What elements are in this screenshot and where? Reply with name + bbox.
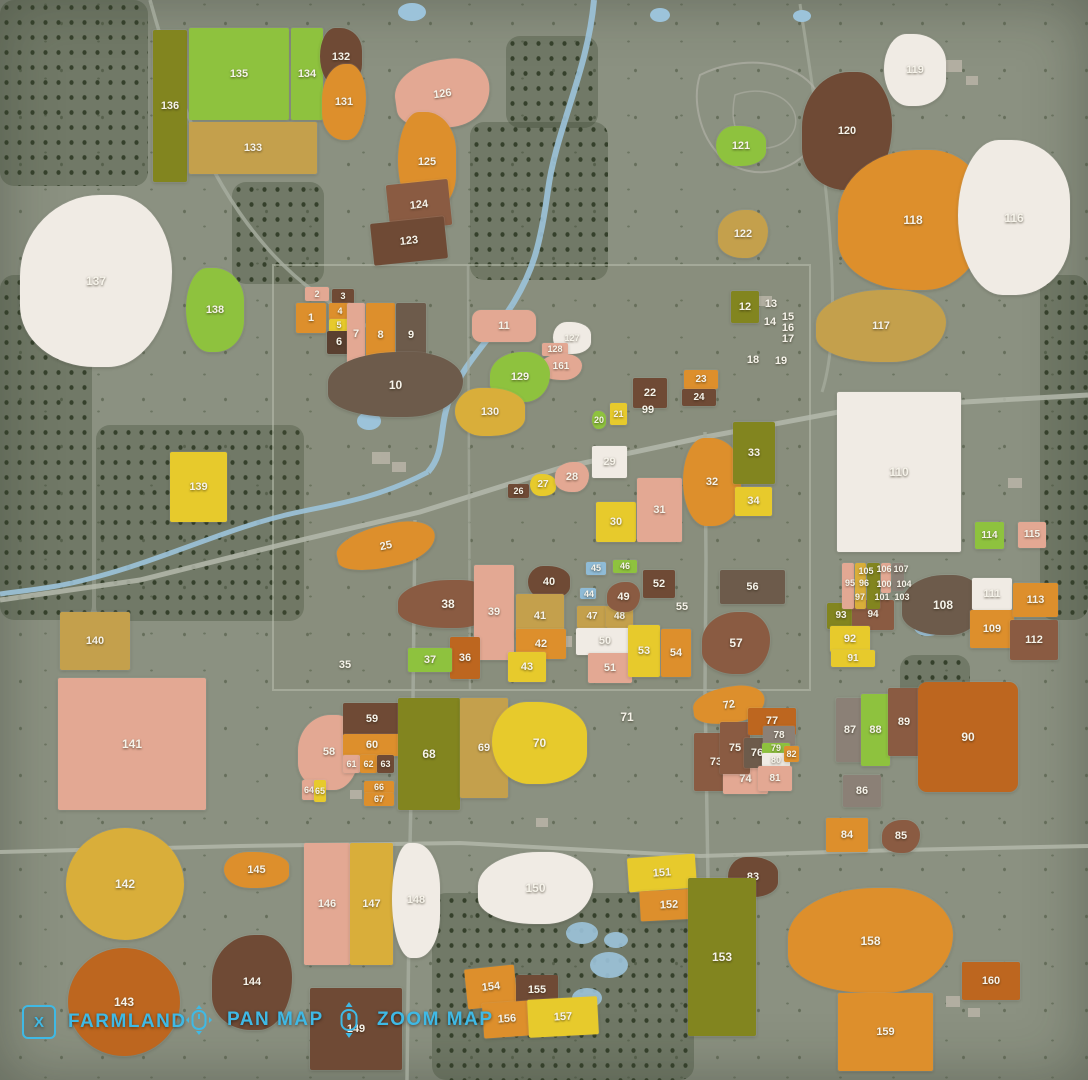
zoom-mouse-icon [333,1000,365,1040]
farmland-label: FARMLAND [68,1011,187,1033]
key-x[interactable]: X [22,1005,56,1039]
farmland-map-screen: 1361351341321311331261251241231191201211… [0,0,1088,1080]
farmland-toggle[interactable]: X FARMLAND [22,1005,187,1039]
zoom-map-control[interactable]: ZOOM MAP [333,1000,494,1040]
pan-map-control[interactable]: PAN MAP [183,1002,324,1038]
hud: X FARMLAND PAN MAP ZOOM MAP [0,0,1088,1080]
zoom-map-label: ZOOM MAP [377,1009,494,1031]
pan-mouse-icon [183,1002,215,1038]
pan-map-label: PAN MAP [227,1009,324,1031]
